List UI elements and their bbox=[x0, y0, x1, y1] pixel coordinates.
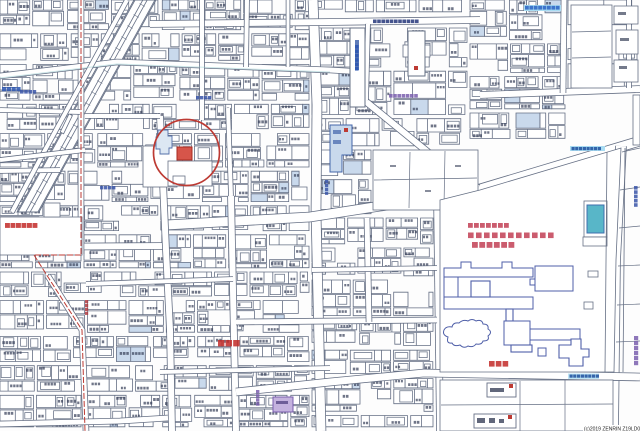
svg-text:(c)2019 ZENRIN Z19LD01: (c)2019 ZENRIN Z19LD01 bbox=[584, 427, 640, 431]
